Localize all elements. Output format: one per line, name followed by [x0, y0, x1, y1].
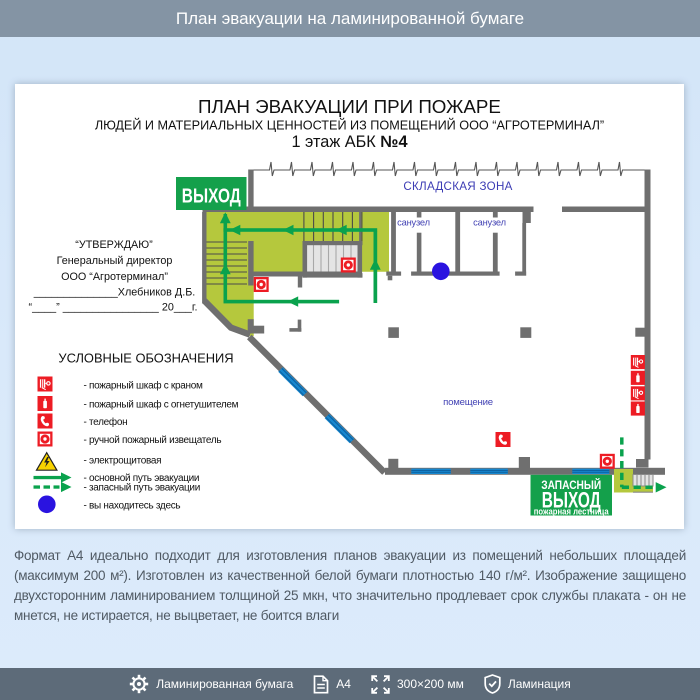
svg-text:- телефон: - телефон: [84, 416, 128, 428]
svg-text:1 этаж АБК №4: 1 этаж АБК №4: [291, 133, 407, 151]
svg-text:- вы находитесь здесь: - вы находитесь здесь: [84, 501, 181, 512]
svg-text:помещение: помещение: [443, 397, 493, 408]
svg-text:ЛЮДЕЙ И МАТЕРИАЛЬНЫХ ЦЕННОСТЕЙ: ЛЮДЕЙ И МАТЕРИАЛЬНЫХ ЦЕННОСТЕЙ ИЗ ПОМЕЩЕ…: [95, 118, 604, 133]
svg-text:ПЛАН ЭВАКУАЦИИ ПРИ ПОЖАРЕ: ПЛАН ЭВАКУАЦИИ ПРИ ПОЖАРЕ: [198, 96, 501, 117]
svg-text:Генеральный директор: Генеральный директор: [57, 255, 173, 267]
svg-text:санузел: санузел: [473, 218, 506, 228]
svg-text:пожарная лестница: пожарная лестница: [534, 506, 610, 517]
svg-text:- пожарный шкаф с краном: - пожарный шкаф с краном: [84, 380, 204, 392]
svg-text:- запасный путь эвакуации: - запасный путь эвакуации: [84, 483, 201, 494]
svg-text:УСЛОВНЫЕ ОБОЗНАЧЕНИЯ: УСЛОВНЫЕ ОБОЗНАЧЕНИЯ: [58, 351, 233, 366]
svg-text:“____” ________________ 20___г: “____” ________________ 20___г.: [29, 302, 198, 314]
svg-text:санузел: санузел: [397, 218, 430, 228]
svg-text:- пожарный шкаф с огнетушителе: - пожарный шкаф с огнетушителем: [84, 399, 239, 411]
svg-text:ООО “Агротерминал”: ООО “Агротерминал”: [61, 271, 168, 283]
svg-text:СКЛАДСКАЯ ЗОНА: СКЛАДСКАЯ ЗОНА: [403, 180, 512, 193]
svg-text:- ручной пожарный извещатель: - ручной пожарный извещатель: [84, 435, 222, 446]
svg-text:- электрощитовая: - электрощитовая: [84, 456, 162, 467]
svg-text:______________Хлебников Д.Б.: ______________Хлебников Д.Б.: [33, 287, 196, 299]
svg-text:ВЫХОД: ВЫХОД: [182, 185, 241, 208]
svg-text:“УТВЕРЖДАЮ”: “УТВЕРЖДАЮ”: [75, 239, 153, 251]
